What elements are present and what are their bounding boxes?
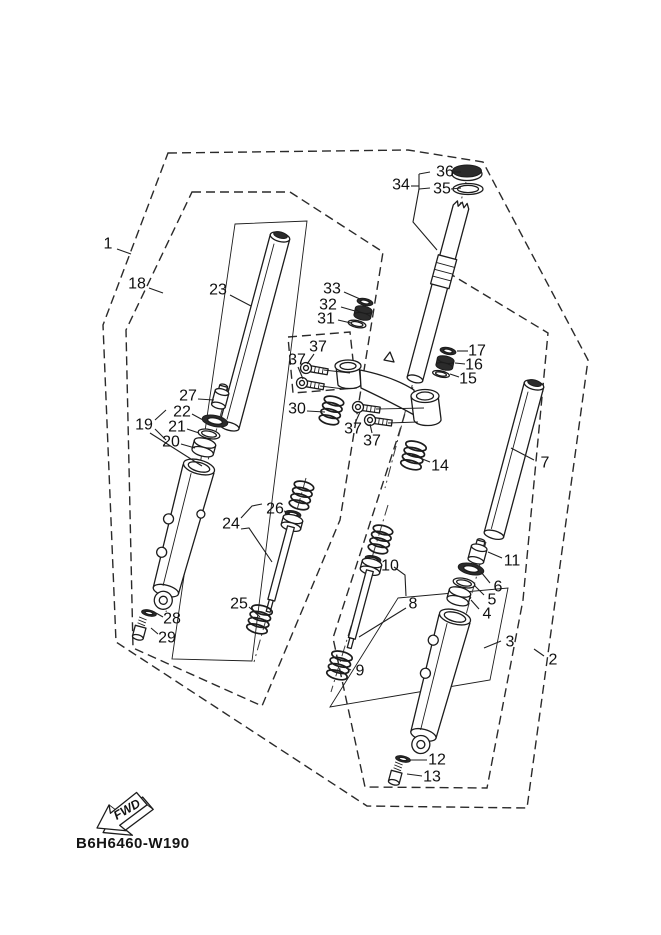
callout-leader-30 xyxy=(307,411,325,412)
callout-leader-34 xyxy=(419,188,430,189)
callout-leader-3 xyxy=(484,641,501,648)
callout-leader-1 xyxy=(117,249,131,254)
callout-leader-24 xyxy=(241,528,272,562)
part-callout-26: 26 xyxy=(266,501,284,518)
part-callout-20: 20 xyxy=(162,434,180,451)
part-callout-37: 37 xyxy=(363,433,381,450)
part-callout-18: 18 xyxy=(128,276,146,293)
part-callout-23: 23 xyxy=(209,282,227,299)
pinch-bolt-37 xyxy=(352,401,381,416)
spacer-11 xyxy=(467,537,489,565)
callout-leader-28 xyxy=(156,613,163,617)
part-callouts: 1182333323134363517161537372722192120303… xyxy=(104,164,558,786)
callout-leader-13 xyxy=(407,774,422,776)
parts-diagram-page: FWD B6H6460-W190 11823333231343635171615… xyxy=(0,0,661,935)
part-callout-25: 25 xyxy=(230,596,248,613)
diagram-code: B6H6460-W190 xyxy=(76,835,190,852)
callout-leader-32 xyxy=(341,307,355,311)
outer-tube-right-3 xyxy=(399,605,472,757)
part-callout-9: 9 xyxy=(356,663,365,680)
stem-cap-36 xyxy=(452,165,482,181)
callout-leader-22 xyxy=(192,414,203,420)
part-callout-7: 7 xyxy=(541,455,550,472)
callout-leader-15 xyxy=(450,374,459,377)
callout-leader-11 xyxy=(488,552,502,558)
part-callout-4: 4 xyxy=(483,606,492,623)
part-callout-35: 35 xyxy=(433,181,451,198)
callout-leader-4 xyxy=(471,600,479,609)
bolt-13 xyxy=(388,762,404,787)
callout-leader-19 xyxy=(155,410,166,420)
part-callout-10: 10 xyxy=(381,558,399,575)
washer-28 xyxy=(141,609,157,618)
callout-leader-21 xyxy=(187,429,199,433)
part-callout-2: 2 xyxy=(549,652,558,669)
callout-leader-37 xyxy=(307,354,314,364)
nut-32 xyxy=(353,304,373,321)
spring-30 xyxy=(318,394,345,426)
outer-tube-left xyxy=(141,455,219,614)
part-callout-3: 3 xyxy=(506,634,515,651)
part-callout-31: 31 xyxy=(317,311,335,328)
pinch-bolt-37 xyxy=(296,377,325,393)
part-callout-24: 24 xyxy=(222,516,240,533)
part-callout-30: 30 xyxy=(288,401,306,418)
callout-leader-33 xyxy=(344,292,360,299)
part-callout-34: 34 xyxy=(392,177,410,194)
callout-leader-6 xyxy=(481,572,490,583)
part-callout-14: 14 xyxy=(431,458,449,475)
callout-leader-18 xyxy=(149,288,163,293)
part-callout-15: 15 xyxy=(459,371,477,388)
part-callout-33: 33 xyxy=(323,281,341,298)
part-callout-27: 27 xyxy=(179,388,197,405)
bolt-29 xyxy=(132,617,148,642)
callout-leader-34 xyxy=(413,189,437,250)
part-callout-13: 13 xyxy=(423,769,441,786)
pinch-bolt-37 xyxy=(364,414,393,429)
part-callout-36: 36 xyxy=(436,164,454,181)
part-callout-19: 19 xyxy=(135,417,153,434)
callout-leader-24 xyxy=(241,504,262,518)
part-callout-28: 28 xyxy=(163,611,181,628)
damper-rod-8 xyxy=(340,557,383,651)
part-callout-37: 37 xyxy=(344,421,362,438)
part-callout-29: 29 xyxy=(158,630,176,647)
damper-rod-24 xyxy=(258,513,303,615)
nut-16 xyxy=(435,354,455,371)
ring-17 xyxy=(439,346,456,356)
part-callout-1: 1 xyxy=(104,236,113,253)
callout-leader-27 xyxy=(198,399,214,400)
callout-leader-8 xyxy=(359,608,406,637)
callout-leader-2 xyxy=(534,649,544,656)
spring-left-damper xyxy=(288,479,315,511)
part-callout-11: 11 xyxy=(504,553,521,570)
part-callout-37: 37 xyxy=(309,339,327,356)
part-callout-8: 8 xyxy=(409,596,418,613)
part-callout-37: 37 xyxy=(288,352,306,369)
front-fork-exploded-diagram: FWD B6H6460-W190 11823333231343635171615… xyxy=(0,0,661,935)
callout-leader-16 xyxy=(455,363,465,364)
callout-leader-23 xyxy=(230,295,251,306)
callout-leader-29 xyxy=(151,628,158,634)
washer-12 xyxy=(395,755,411,764)
part-callout-12: 12 xyxy=(428,752,446,769)
stem-ring-35 xyxy=(453,184,483,195)
callout-leader-34 xyxy=(419,172,430,174)
